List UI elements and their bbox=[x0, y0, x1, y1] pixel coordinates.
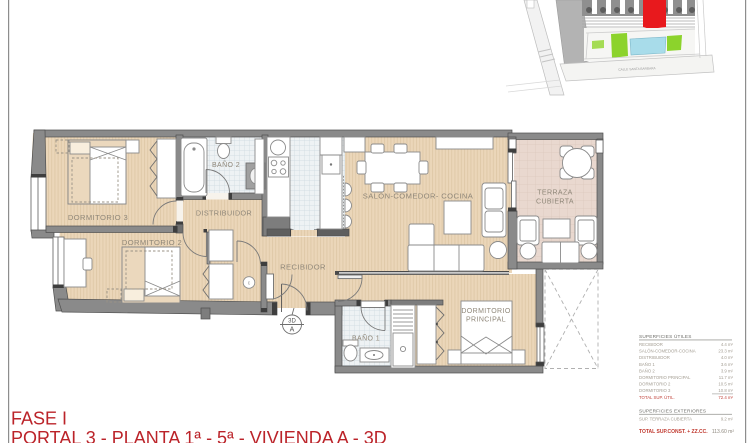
svg-text:10.8 m²: 10.8 m² bbox=[718, 388, 733, 393]
svg-text:DORMITORIO 2: DORMITORIO 2 bbox=[122, 238, 182, 247]
svg-text:BAÑO 2: BAÑO 2 bbox=[212, 160, 240, 169]
svg-text:4.4 m²: 4.4 m² bbox=[721, 342, 734, 347]
svg-text:11.7 m²: 11.7 m² bbox=[719, 375, 734, 380]
svg-text:3.9 m²: 3.9 m² bbox=[721, 368, 734, 373]
svg-text:TOTAL SUP.CONST. + ZZ.CC.: TOTAL SUP.CONST. + ZZ.CC. bbox=[639, 429, 708, 435]
svg-text:3.6 m²: 3.6 m² bbox=[721, 362, 734, 367]
svg-text:RECIBIDOR: RECIBIDOR bbox=[280, 263, 326, 272]
svg-text:RECIBIDOR: RECIBIDOR bbox=[639, 342, 663, 347]
svg-text:SALÓN-COMEDOR- COCINA: SALÓN-COMEDOR- COCINA bbox=[363, 192, 474, 201]
svg-text:DORMITORIO 3: DORMITORIO 3 bbox=[68, 213, 128, 222]
svg-text:BAÑO 2: BAÑO 2 bbox=[639, 368, 655, 373]
svg-text:PRINCIPAL: PRINCIPAL bbox=[466, 317, 506, 324]
svg-text:BAÑO 1: BAÑO 1 bbox=[352, 334, 380, 343]
svg-text:DISTRIBUIDOR: DISTRIBUIDOR bbox=[639, 355, 670, 360]
svg-text:3D: 3D bbox=[288, 319, 296, 325]
svg-text:TERRAZA: TERRAZA bbox=[537, 190, 572, 197]
svg-text:23.3 m²: 23.3 m² bbox=[718, 349, 733, 354]
svg-text:DORMITORIO: DORMITORIO bbox=[461, 308, 511, 315]
svg-text:DORMITORIO PRINCIPAL: DORMITORIO PRINCIPAL bbox=[639, 375, 691, 380]
svg-text:DISTRIBUIDOR: DISTRIBUIDOR bbox=[196, 209, 252, 218]
svg-text:SUPERFICIES EXTERIORES: SUPERFICIES EXTERIORES bbox=[639, 408, 706, 413]
svg-text:SALÓN-COMEDOR-COCINA: SALÓN-COMEDOR-COCINA bbox=[639, 349, 696, 354]
svg-text:A: A bbox=[290, 327, 295, 334]
svg-text:10.5 m²: 10.5 m² bbox=[718, 382, 733, 387]
svg-text:BAÑO 1: BAÑO 1 bbox=[639, 362, 655, 367]
svg-text:113.60 m²: 113.60 m² bbox=[712, 429, 734, 435]
svg-text:SUP. TERRAZA CUBIERTA: SUP. TERRAZA CUBIERTA bbox=[639, 417, 692, 422]
svg-text:FASE I: FASE I bbox=[11, 409, 67, 429]
svg-text:DORMITORIO 3: DORMITORIO 3 bbox=[639, 388, 671, 393]
svg-text:DORMITORIO 2: DORMITORIO 2 bbox=[639, 382, 671, 387]
svg-text:CUBIERTA: CUBIERTA bbox=[536, 199, 574, 206]
svg-text:TOTAL SUP. ÚTIL.: TOTAL SUP. ÚTIL. bbox=[639, 395, 675, 400]
svg-text:PORTAL 3 - PLANTA 1ª - 5ª - VI: PORTAL 3 - PLANTA 1ª - 5ª - VIVIENDA A -… bbox=[11, 428, 387, 443]
svg-text:4.0 m²: 4.0 m² bbox=[721, 355, 734, 360]
svg-text:SUPERFICIES ÚTILES: SUPERFICIES ÚTILES bbox=[639, 333, 692, 339]
svg-text:9.2 m²: 9.2 m² bbox=[721, 417, 734, 422]
svg-text:72.4 m²: 72.4 m² bbox=[718, 395, 733, 400]
